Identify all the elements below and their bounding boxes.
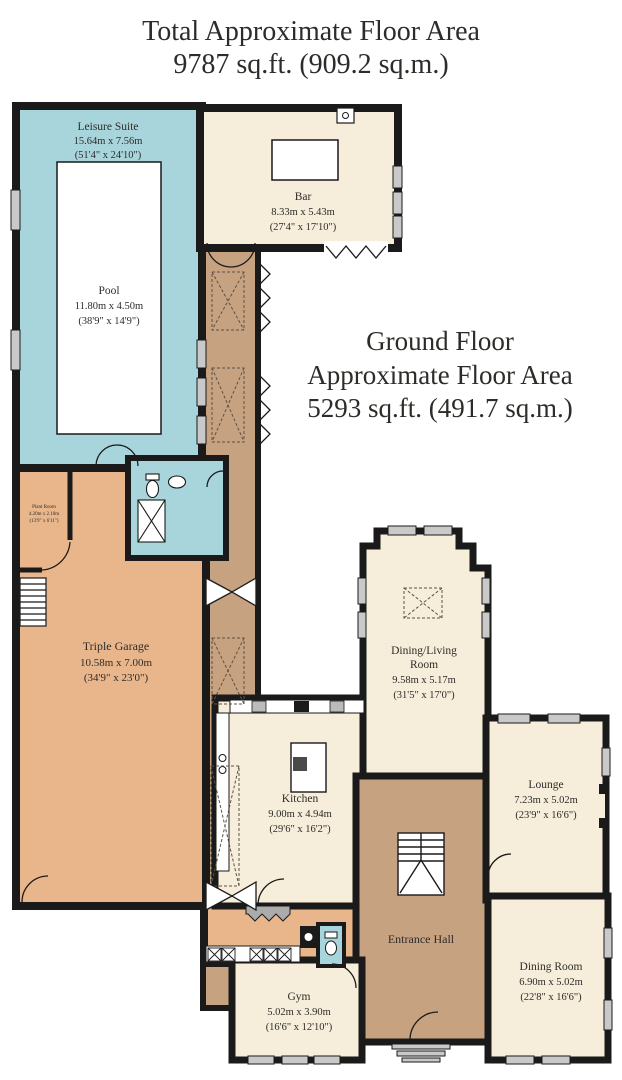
svg-text:Dining/Living: Dining/Living [391, 645, 457, 657]
label-triple-garage: Triple Garage 10.58m x 7.00m (34'9" x 23… [80, 639, 153, 684]
svg-text:(38'9" x 14'9"): (38'9" x 14'9") [78, 316, 140, 327]
lounge-room [486, 718, 606, 900]
porch-step [402, 1058, 440, 1062]
svg-text:(13'9" x 6'11"): (13'9" x 6'11") [29, 519, 58, 524]
window [542, 1056, 570, 1064]
window [11, 190, 20, 230]
svg-text:(31'5" x 17'0"): (31'5" x 17'0") [393, 690, 455, 701]
sink-basin [305, 933, 313, 941]
window [424, 526, 452, 535]
hob-icon [293, 757, 307, 771]
bar-sink [337, 108, 354, 123]
svg-text:Plant Room: Plant Room [32, 505, 56, 510]
window [248, 1056, 274, 1064]
svg-text:10.58m x 7.00m: 10.58m x 7.00m [80, 657, 153, 669]
window [393, 166, 402, 188]
floorplan-page: Total Approximate Floor Area 9787 sq.ft.… [0, 0, 622, 1080]
pool-outline [57, 162, 161, 434]
svg-text:6.90m x 5.02m: 6.90m x 5.02m [519, 977, 583, 988]
window [604, 1000, 612, 1030]
svg-text:(51'4" x 24'10"): (51'4" x 24'10") [75, 150, 142, 161]
window [282, 1056, 308, 1064]
ground-floor-label-line2: Approximate Floor Area [307, 360, 572, 390]
label-dining-room: Dining Room 6.90m x 5.02m (22'8" x 16'6"… [519, 961, 583, 1003]
svg-text:Lounge: Lounge [528, 779, 563, 791]
window [388, 526, 416, 535]
window [393, 216, 402, 238]
svg-text:9.00m x 4.94m: 9.00m x 4.94m [268, 809, 332, 820]
window [498, 714, 530, 723]
window [506, 1056, 534, 1064]
window [197, 340, 206, 368]
svg-text:(16'6" x 12'10"): (16'6" x 12'10") [266, 1022, 333, 1033]
window [197, 416, 206, 444]
svg-text:Entrance Hall: Entrance Hall [388, 932, 455, 946]
window [482, 612, 490, 638]
appliance-icon [330, 701, 344, 712]
main-staircase [398, 833, 444, 895]
label-leisure-suite: Leisure Suite 15.64m x 7.56m (51'4" x 24… [74, 121, 143, 161]
wall-opening [324, 241, 388, 256]
svg-text:(29'6" x 16'2"): (29'6" x 16'2") [269, 824, 331, 835]
sink-icon [169, 476, 186, 488]
svg-text:Room: Room [410, 659, 438, 671]
svg-text:11.80m x 4.50m: 11.80m x 4.50m [75, 301, 143, 312]
svg-text:Triple Garage: Triple Garage [83, 639, 150, 653]
porch-step [392, 1044, 450, 1049]
window [358, 612, 366, 638]
appliance-icon [252, 701, 266, 712]
floorplan-svg: Total Approximate Floor Area 9787 sq.ft.… [0, 0, 622, 1080]
window [11, 330, 20, 370]
svg-text:Gym: Gym [288, 991, 311, 1003]
svg-text:Bar: Bar [295, 191, 312, 203]
svg-text:15.64m x 7.56m: 15.64m x 7.56m [74, 136, 143, 147]
page-title-line1: Total Approximate Floor Area [142, 16, 480, 47]
toilet-icon [326, 941, 337, 955]
toilet-tank [325, 932, 337, 938]
window [314, 1056, 340, 1064]
page-title-line2: 9787 sq.ft. (909.2 sq.m.) [173, 49, 448, 80]
garage-stairs [20, 578, 46, 626]
svg-text:4.20m x 2.10m: 4.20m x 2.10m [29, 512, 59, 517]
svg-text:(23'9" x 16'6"): (23'9" x 16'6") [515, 810, 577, 821]
window [358, 578, 366, 604]
svg-text:7.23m x 5.02m: 7.23m x 5.02m [514, 795, 578, 806]
window [604, 928, 612, 958]
svg-text:Pool: Pool [98, 285, 119, 297]
svg-text:Kitchen: Kitchen [282, 793, 319, 805]
ground-floor-label-line3: 5293 sq.ft. (491.7 sq.m.) [307, 393, 573, 423]
label-plant-room: Plant Room 4.20m x 2.10m (13'9" x 6'11") [29, 505, 59, 524]
toilet-tank [146, 474, 159, 480]
svg-text:8.33m x 5.43m: 8.33m x 5.43m [271, 207, 335, 218]
label-entrance-hall: Entrance Hall [388, 932, 455, 946]
window [548, 714, 580, 723]
svg-text:Dining Room: Dining Room [520, 961, 583, 973]
window [602, 748, 610, 776]
window [393, 192, 402, 214]
svg-text:(34'9" x 23'0"): (34'9" x 23'0") [84, 672, 149, 684]
rooms-layer [16, 106, 608, 1060]
toilet-icon [147, 481, 159, 498]
window [197, 378, 206, 406]
window [482, 578, 490, 604]
ground-floor-label-line1: Ground Floor [366, 326, 514, 356]
svg-text:5.02m x 3.90m: 5.02m x 3.90m [267, 1007, 331, 1018]
svg-text:(27'4" x 17'10"): (27'4" x 17'10") [270, 222, 337, 233]
porch-step [397, 1051, 445, 1056]
svg-text:9.58m x 5.17m: 9.58m x 5.17m [392, 675, 456, 686]
entrance-hall-room [356, 776, 488, 1042]
svg-text:Leisure Suite: Leisure Suite [78, 121, 139, 133]
bar-counter [272, 140, 338, 180]
oven-icon [294, 701, 309, 712]
svg-text:(22'8" x 16'6"): (22'8" x 16'6") [520, 992, 582, 1003]
kitchen-counter [216, 713, 229, 871]
fireplace-icon [599, 784, 609, 828]
